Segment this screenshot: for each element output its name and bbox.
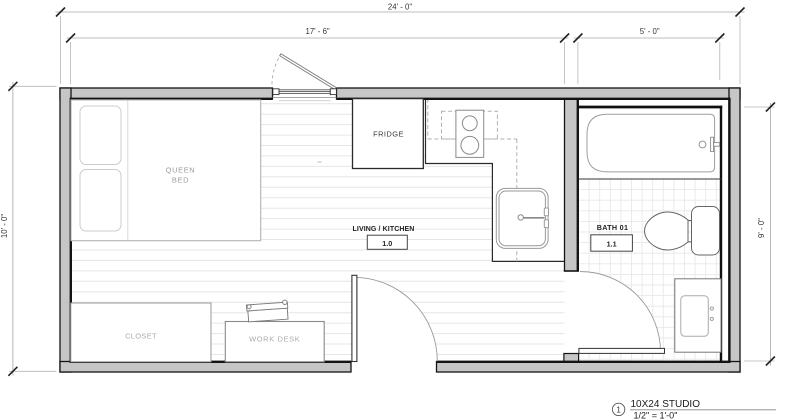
svg-text:BED: BED: [172, 176, 189, 185]
svg-text:10' - 0": 10' - 0": [0, 214, 9, 238]
svg-text:1: 1: [616, 405, 621, 414]
svg-text:WORK DESK: WORK DESK: [249, 335, 300, 344]
svg-text:9' - 0": 9' - 0": [757, 218, 766, 238]
svg-text:QUEEN: QUEEN: [166, 166, 196, 175]
svg-text:10X24 STUDIO: 10X24 STUDIO: [631, 399, 701, 410]
svg-text:1.1: 1.1: [607, 240, 617, 249]
svg-text:1.0: 1.0: [382, 239, 392, 248]
svg-text:5' - 0": 5' - 0": [640, 27, 660, 36]
svg-text:FRIDGE: FRIDGE: [373, 130, 404, 139]
svg-text:CLOSET: CLOSET: [125, 332, 157, 341]
svg-text:17' - 6": 17' - 6": [305, 27, 329, 36]
svg-text:LIVING / KITCHEN: LIVING / KITCHEN: [353, 226, 415, 233]
svg-text:BATH 01: BATH 01: [597, 223, 629, 232]
svg-text:24' - 0": 24' - 0": [388, 3, 412, 12]
svg-text:1/2" = 1'-0": 1/2" = 1'-0": [634, 411, 678, 420]
